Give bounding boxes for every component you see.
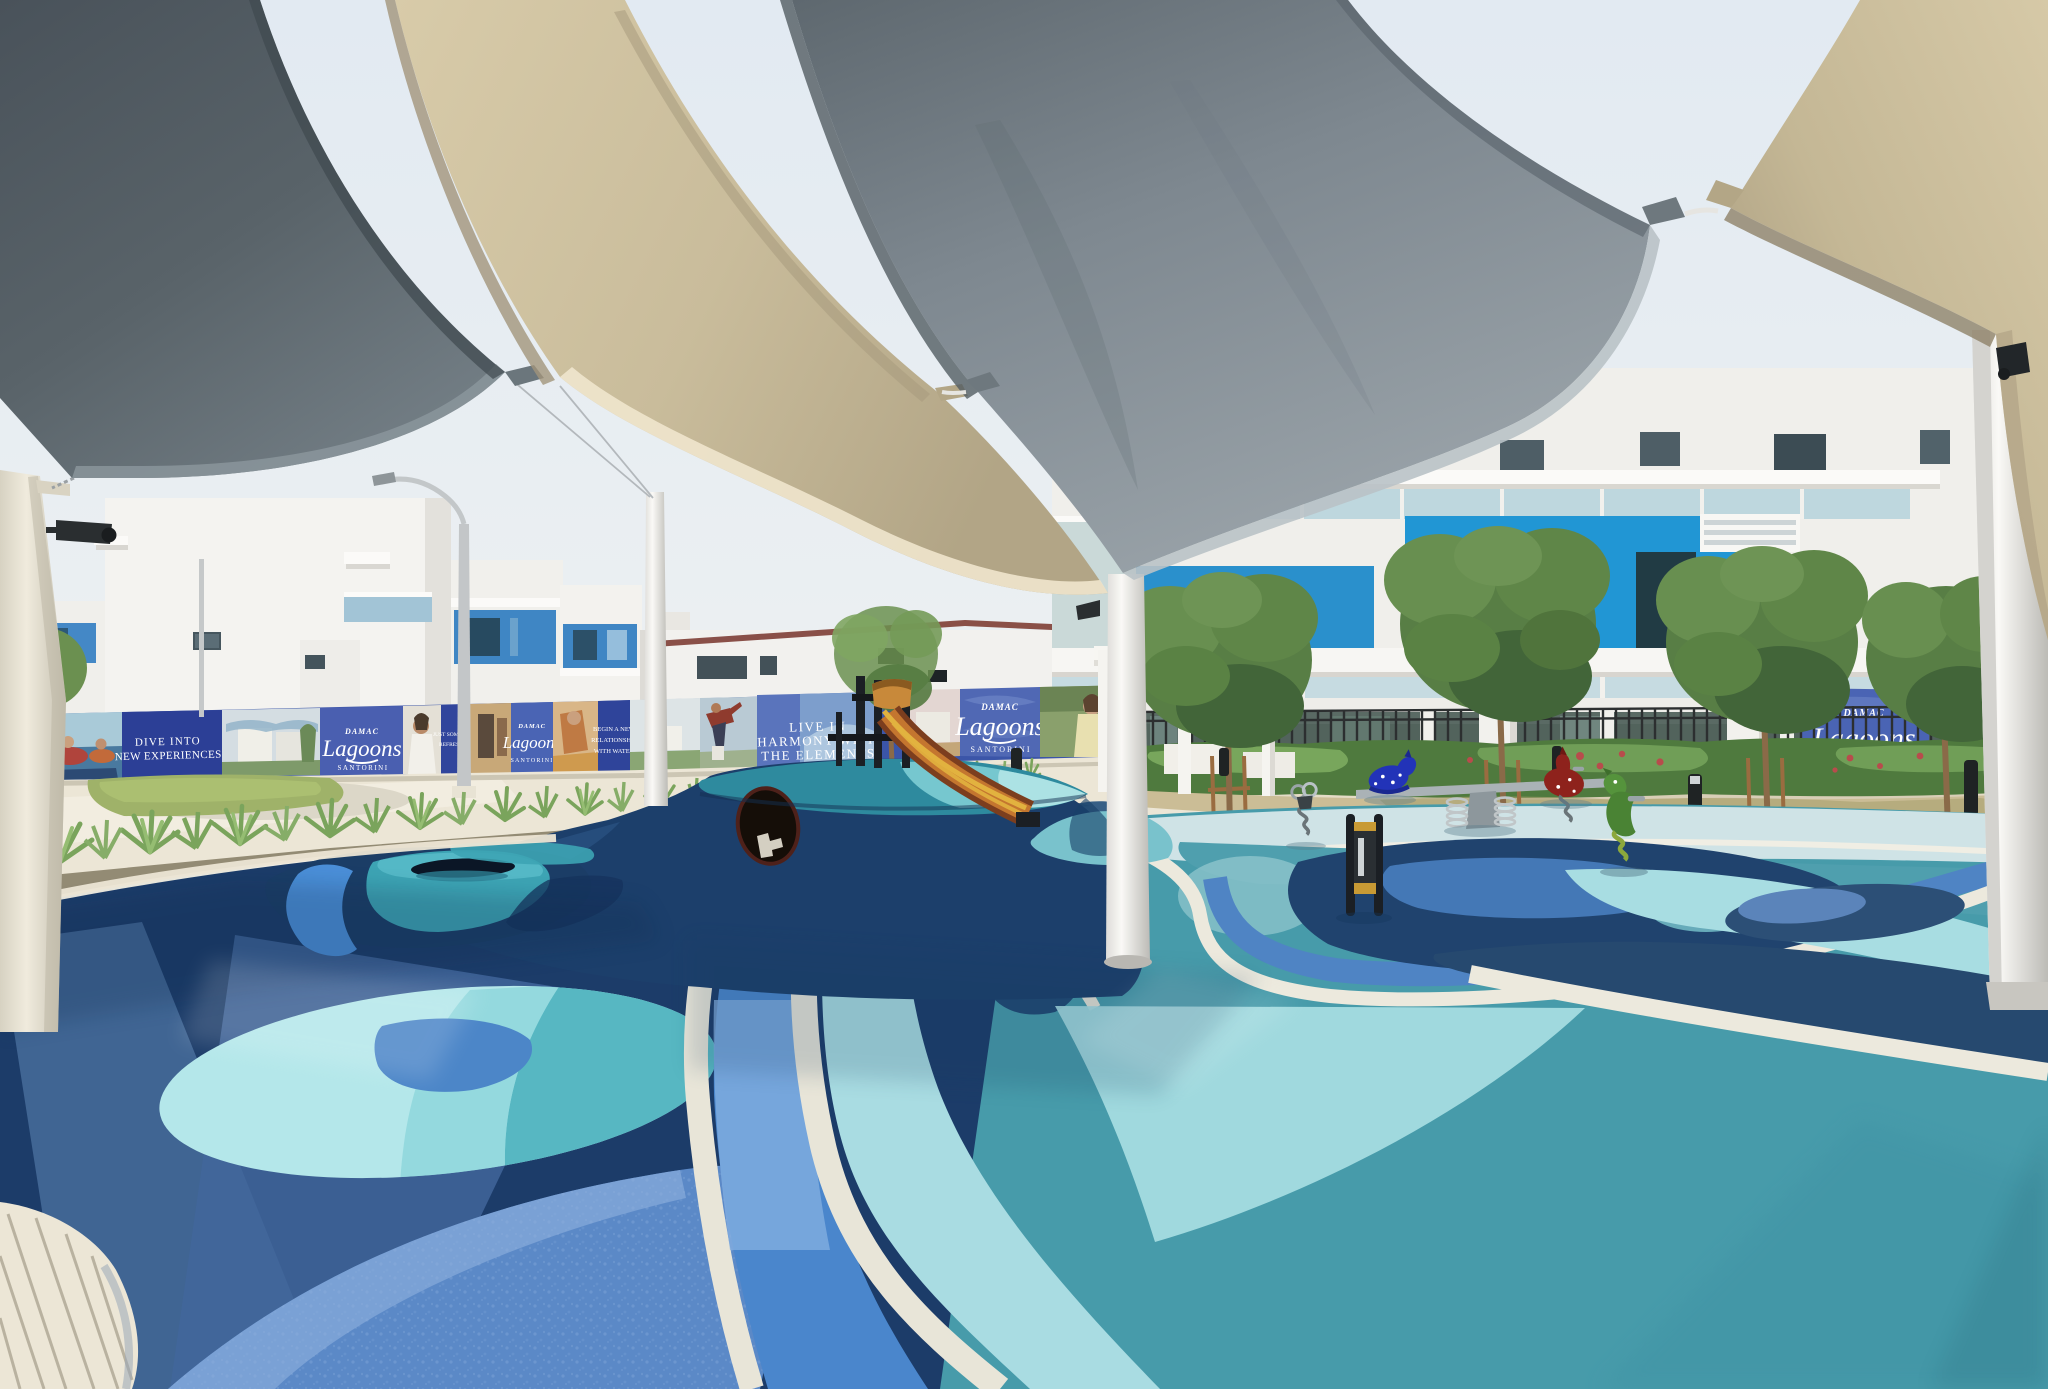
svg-text:SANTORINI: SANTORINI bbox=[510, 758, 553, 764]
svg-text:DIVE INTO: DIVE INTO bbox=[135, 735, 201, 749]
svg-text:SANTORINI: SANTORINI bbox=[337, 764, 388, 772]
svg-text:WITH WATER: WITH WATER bbox=[594, 748, 635, 755]
svg-text:DAMAC: DAMAC bbox=[517, 723, 545, 730]
svg-text:Lagoons: Lagoons bbox=[502, 733, 562, 752]
svg-text:SANTORINI: SANTORINI bbox=[971, 745, 1032, 754]
svg-text:Lagoons: Lagoons bbox=[954, 712, 1045, 741]
svg-text:DAMAC: DAMAC bbox=[980, 702, 1019, 712]
svg-text:DAMAC: DAMAC bbox=[344, 727, 379, 736]
svg-text:BEGIN A NEW: BEGIN A NEW bbox=[593, 726, 636, 733]
svg-text:Lagoons: Lagoons bbox=[321, 736, 401, 761]
